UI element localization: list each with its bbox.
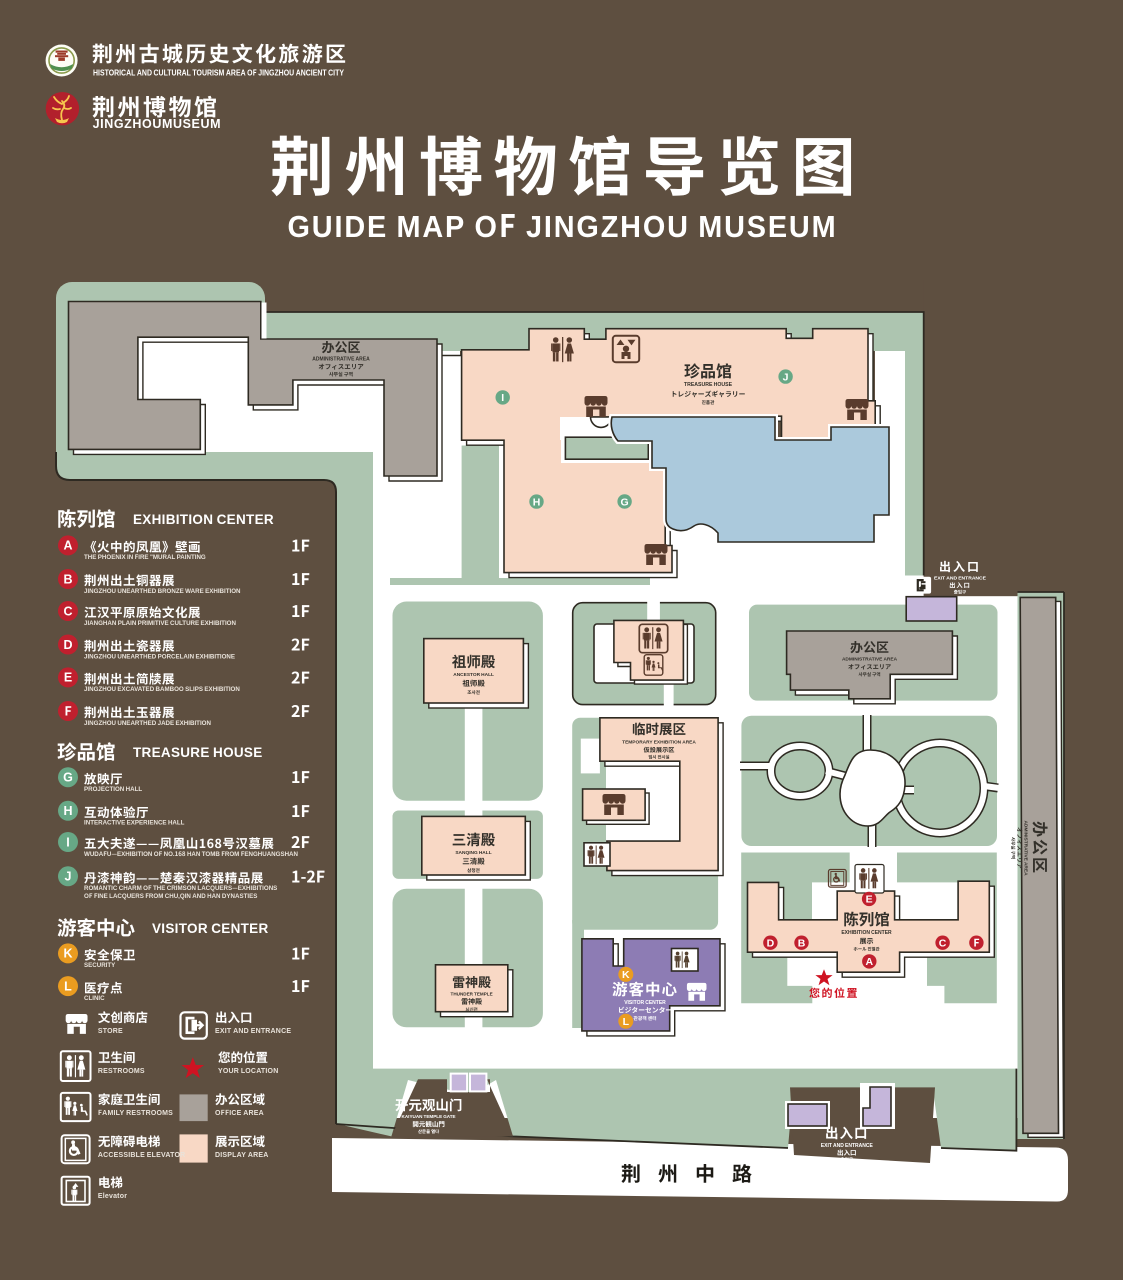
svg-text:出入口: 出入口 <box>837 1147 857 1157</box>
svg-text:出入口: 出入口 <box>939 558 981 575</box>
svg-text:I: I <box>501 390 504 405</box>
svg-text:THE PHOENIX IN FIRE "MURAL PAI: THE PHOENIX IN FIRE "MURAL PAINTING <box>84 552 206 561</box>
svg-text:1-2F: 1-2F <box>291 863 325 887</box>
svg-text:2F: 2F <box>291 664 310 688</box>
svg-text:F: F <box>64 700 71 719</box>
svg-text:E: E <box>866 892 873 907</box>
svg-text:办公区: 办公区 <box>1029 821 1053 875</box>
svg-text:EXIT AND ENTRANCE: EXIT AND ENTRANCE <box>215 1026 291 1036</box>
svg-text:A: A <box>63 535 72 554</box>
svg-text:电梯: 电梯 <box>98 1172 123 1191</box>
svg-text:YOUR LOCATION: YOUR LOCATION <box>218 1066 278 1076</box>
svg-text:JINGZHOU UNEARTHED BRONZE WARE: JINGZHOU UNEARTHED BRONZE WARE EXHIBITIO… <box>84 586 241 595</box>
svg-text:1F: 1F <box>291 940 310 964</box>
svg-text:D: D <box>767 936 775 951</box>
svg-text:1F: 1F <box>291 973 310 997</box>
svg-text:出入口: 出入口 <box>215 1007 253 1026</box>
svg-text:CLINIC: CLINIC <box>84 993 105 1002</box>
svg-text:家庭卫生间: 家庭卫生间 <box>98 1089 161 1108</box>
svg-text:OF FINE LACQUERS FROM CHU,QIN: OF FINE LACQUERS FROM CHU,QIN AND HAN DY… <box>84 891 257 900</box>
svg-text:G: G <box>63 767 73 786</box>
svg-text:仮設展示区: 仮設展示区 <box>644 745 675 754</box>
svg-text:관광객 센터: 관광객 센터 <box>633 1015 656 1022</box>
svg-text:B: B <box>798 936 806 951</box>
svg-text:展示区域: 展示区域 <box>215 1131 266 1150</box>
svg-text:1F: 1F <box>291 764 310 788</box>
svg-text:A: A <box>866 954 874 969</box>
svg-text:陈列馆: 陈列馆 <box>843 908 890 930</box>
svg-text:STORE: STORE <box>98 1026 123 1036</box>
svg-text:Elevator: Elevator <box>98 1191 127 1201</box>
svg-text:荆州博物馆导览图: 荆州博物馆导览图 <box>270 117 866 209</box>
svg-text:文创商店: 文创商店 <box>98 1007 148 1026</box>
svg-text:INTERACTIVE EXPERIENCE HALL: INTERACTIVE EXPERIENCE HALL <box>84 818 185 827</box>
svg-text:办公区域: 办公区域 <box>215 1089 266 1108</box>
svg-text:EXHIBITION CENTER: EXHIBITION CENTER <box>133 508 274 528</box>
svg-text:祖师殿: 祖师殿 <box>452 651 496 672</box>
svg-text:荆州中路: 荆州中路 <box>621 1158 769 1187</box>
svg-text:B: B <box>63 568 72 587</box>
svg-text:1F: 1F <box>291 798 310 822</box>
svg-text:OFFICE AREA: OFFICE AREA <box>215 1108 264 1118</box>
svg-text:2F: 2F <box>291 698 310 722</box>
svg-text:VISITOR CENTER: VISITOR CENTER <box>152 917 269 937</box>
svg-text:珍品馆: 珍品馆 <box>57 736 116 765</box>
svg-text:사무실 구역: 사무실 구역 <box>1010 837 1016 859</box>
svg-text:SANQING HALL: SANQING HALL <box>455 849 491 856</box>
svg-text:无障碍电梯: 无障碍电梯 <box>98 1131 161 1150</box>
svg-text:三清殿: 三清殿 <box>452 829 496 850</box>
svg-text:1F: 1F <box>291 566 310 590</box>
svg-text:开元观山门: 开元观山门 <box>395 1094 463 1114</box>
svg-text:H: H <box>533 494 541 509</box>
svg-text:您的位置: 您的位置 <box>218 1047 268 1066</box>
svg-text:办公区: 办公区 <box>321 337 360 356</box>
svg-text:JINGZHOU UNEARTHED PORCELAIN E: JINGZHOU UNEARTHED PORCELAIN EXHIBITIONE <box>84 651 235 660</box>
svg-text:SECURITY: SECURITY <box>84 960 116 969</box>
svg-text:トレジャーズギャラリー: トレジャーズギャラリー <box>671 389 746 399</box>
svg-text:D: D <box>63 634 72 653</box>
svg-text:TREASURE HOUSE: TREASURE HOUSE <box>684 381 733 388</box>
svg-text:DISPLAY AREA: DISPLAY AREA <box>215 1150 269 1160</box>
svg-text:C: C <box>63 600 72 619</box>
svg-text:L: L <box>623 1014 630 1029</box>
svg-text:卫生间: 卫生间 <box>98 1047 136 1066</box>
svg-text:진품관: 진품관 <box>702 400 715 406</box>
svg-text:1F: 1F <box>291 532 310 556</box>
svg-text:JINGZHOU EXCAVATED BAMBOO SLIP: JINGZHOU EXCAVATED BAMBOO SLIPS EXHIBITI… <box>84 684 240 693</box>
svg-text:JINGZHOUMUSEUM: JINGZHOUMUSEUM <box>93 113 222 132</box>
svg-text:雷神殿: 雷神殿 <box>461 997 482 1007</box>
svg-text:WUDAFU—EXHIBITION OF NO.168 HA: WUDAFU—EXHIBITION OF NO.168 HAN TOMB FRO… <box>84 849 299 858</box>
svg-text:游客中心: 游客中心 <box>612 978 678 1000</box>
svg-text:游客中心: 游客中心 <box>57 912 136 941</box>
svg-text:L: L <box>64 975 72 994</box>
svg-text:삼청전: 삼청전 <box>467 868 480 874</box>
svg-text:HISTORICAL AND CULTURAL TOURIS: HISTORICAL AND CULTURAL TOURISM AREA OF … <box>93 67 344 79</box>
svg-text:뇌신전: 뇌신전 <box>466 1007 478 1013</box>
svg-text:EXHIBITION CENTER: EXHIBITION CENTER <box>841 929 892 936</box>
svg-text:2F: 2F <box>291 632 310 656</box>
svg-text:F: F <box>973 936 979 951</box>
svg-text:출입구: 출입구 <box>954 590 966 596</box>
svg-text:C: C <box>939 936 947 951</box>
svg-text:ホール 진열관: ホール 진열관 <box>853 947 879 953</box>
svg-text:展示: 展示 <box>860 937 874 947</box>
svg-text:K: K <box>63 943 72 962</box>
svg-text:1F: 1F <box>291 598 310 622</box>
svg-text:JINGZHOU UNEARTHED JADE EXHIBI: JINGZHOU UNEARTHED JADE EXHIBITION <box>84 718 211 727</box>
svg-text:J: J <box>783 369 789 384</box>
svg-text:RESTROOMS: RESTROOMS <box>98 1066 145 1076</box>
svg-text:TREASURE HOUSE: TREASURE HOUSE <box>133 741 263 761</box>
svg-text:三清殿: 三清殿 <box>462 856 485 867</box>
svg-text:オフィスエリア: オフィスエリア <box>848 662 891 671</box>
svg-text:ビジターセンター: ビジターセンター <box>618 1005 673 1015</box>
svg-text:사무실 구역: 사무실 구역 <box>329 371 354 378</box>
svg-text:E: E <box>64 667 72 686</box>
svg-text:ACCESSIBLE ELEVATOR: ACCESSIBLE ELEVATOR <box>98 1150 185 1160</box>
svg-text:您的位置: 您的位置 <box>809 985 859 1001</box>
svg-text:JIANGHAN PLAIN PRIMITIVE CULTU: JIANGHAN PLAIN PRIMITIVE CULTURE EXHIBIT… <box>84 618 236 627</box>
svg-text:雷神殿: 雷神殿 <box>452 972 491 991</box>
svg-text:GUIDE MAP OF JINGZHOU MUSEUM: GUIDE MAP OF JINGZHOU MUSEUM <box>288 201 838 246</box>
svg-text:FAMILY RESTROOMS: FAMILY RESTROOMS <box>98 1108 173 1118</box>
svg-text:임시 전시실: 임시 전시실 <box>648 755 669 761</box>
svg-text:PROJECTION HALL: PROJECTION HALL <box>84 784 142 793</box>
svg-text:出入口: 出入口 <box>825 1122 869 1142</box>
svg-text:ANCESTOR HALL: ANCESTOR HALL <box>453 671 494 678</box>
svg-text:H: H <box>63 800 72 819</box>
svg-text:オフィスエリア: オフィスエリア <box>318 361 364 371</box>
svg-text:I: I <box>66 831 69 850</box>
svg-text:办公区: 办公区 <box>850 637 889 656</box>
svg-text:陈列馆: 陈列馆 <box>57 503 116 532</box>
svg-text:出入口: 出入口 <box>949 581 971 590</box>
svg-text:祖师殿: 祖师殿 <box>462 678 485 689</box>
svg-text:사무실 구역: 사무실 구역 <box>858 672 880 678</box>
svg-text:J: J <box>65 866 72 885</box>
svg-text:临时展区: 临时展区 <box>632 718 686 738</box>
svg-text:オフィスエリア: オフィスエリア <box>1016 827 1025 869</box>
svg-text:조사전: 조사전 <box>467 690 480 696</box>
svg-text:산문을 열다: 산문을 열다 <box>418 1129 439 1135</box>
svg-text:출입구: 출입구 <box>840 1157 853 1163</box>
svg-text:2F: 2F <box>291 829 310 853</box>
svg-text:G: G <box>621 494 629 509</box>
svg-text:荆州古城历史文化旅游区: 荆州古城历史文化旅游区 <box>92 39 348 69</box>
svg-text:珍品馆: 珍品馆 <box>684 358 732 382</box>
svg-text:開元観山門: 開元観山門 <box>412 1119 445 1129</box>
